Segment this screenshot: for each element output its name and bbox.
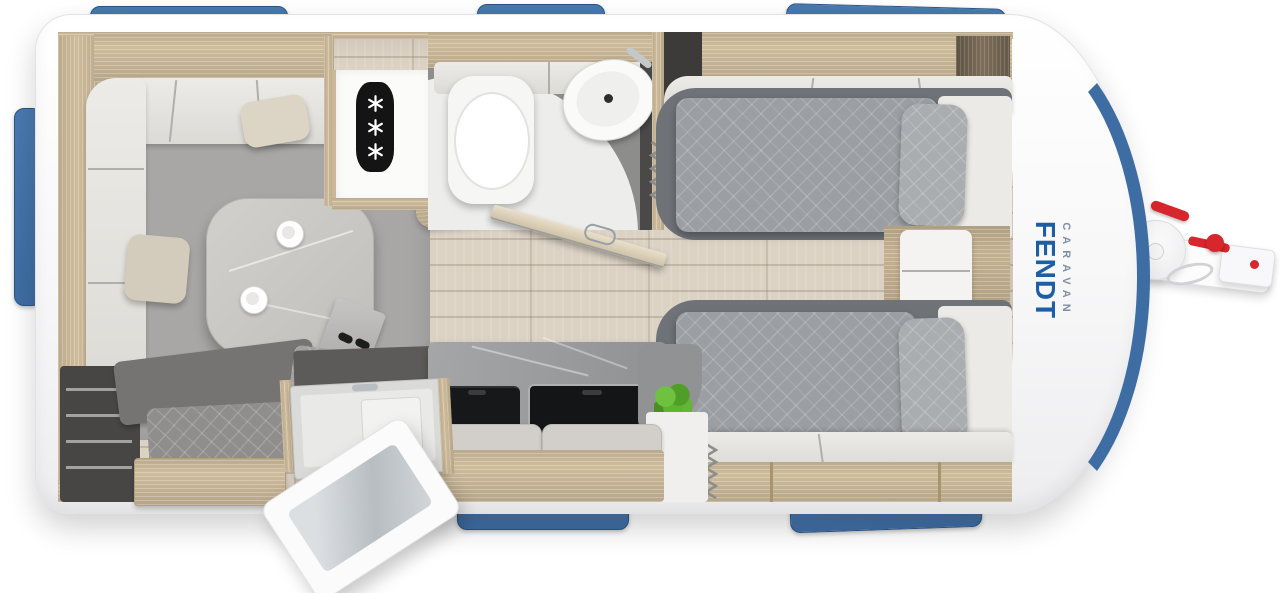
sink-faucet [352, 383, 378, 391]
bed-bottom-base-cabinet [702, 462, 1012, 502]
caravan-floorplan: CARAVAN FENDT [0, 0, 1280, 593]
wire-shelf [66, 466, 132, 469]
stove-cover-handle [468, 390, 486, 395]
brand-subtitle-text: CARAVAN [1060, 200, 1072, 340]
toilet-seat [454, 92, 530, 190]
bed-bottom-pillow [898, 317, 968, 445]
brand-name-text: FENDT [1029, 200, 1060, 340]
coupling-red-dot [1250, 260, 1259, 269]
coffee-cup-inner [246, 292, 259, 305]
panel-seam [88, 168, 144, 170]
panel-seam [902, 270, 970, 272]
kitchen-front-cabinet [424, 450, 664, 502]
lounge-overhead-lockers [94, 32, 332, 82]
sink-cover-handle [582, 390, 602, 395]
snowflake-icon [367, 143, 384, 160]
sofa-pillow-left [123, 233, 191, 304]
fridge-under-shelf [332, 198, 428, 210]
storage-drawer [134, 458, 286, 506]
sink-drain [604, 94, 613, 103]
fridge-freezer-icon [356, 82, 394, 172]
snowflake-icon [367, 95, 384, 112]
brand-logo: CARAVAN FENDT [1016, 200, 1072, 340]
washroom [428, 32, 664, 230]
cabinet-divider [938, 462, 941, 502]
snowflake-icon [367, 119, 384, 136]
bed-bottom-duvet [676, 312, 916, 452]
cabinet-divider [770, 462, 773, 502]
panel-seam [548, 62, 550, 94]
wire-shelf [66, 440, 132, 443]
bed-top-pillow [898, 103, 968, 227]
coffee-cup-inner [282, 226, 295, 239]
coupling-knob [1206, 234, 1224, 252]
